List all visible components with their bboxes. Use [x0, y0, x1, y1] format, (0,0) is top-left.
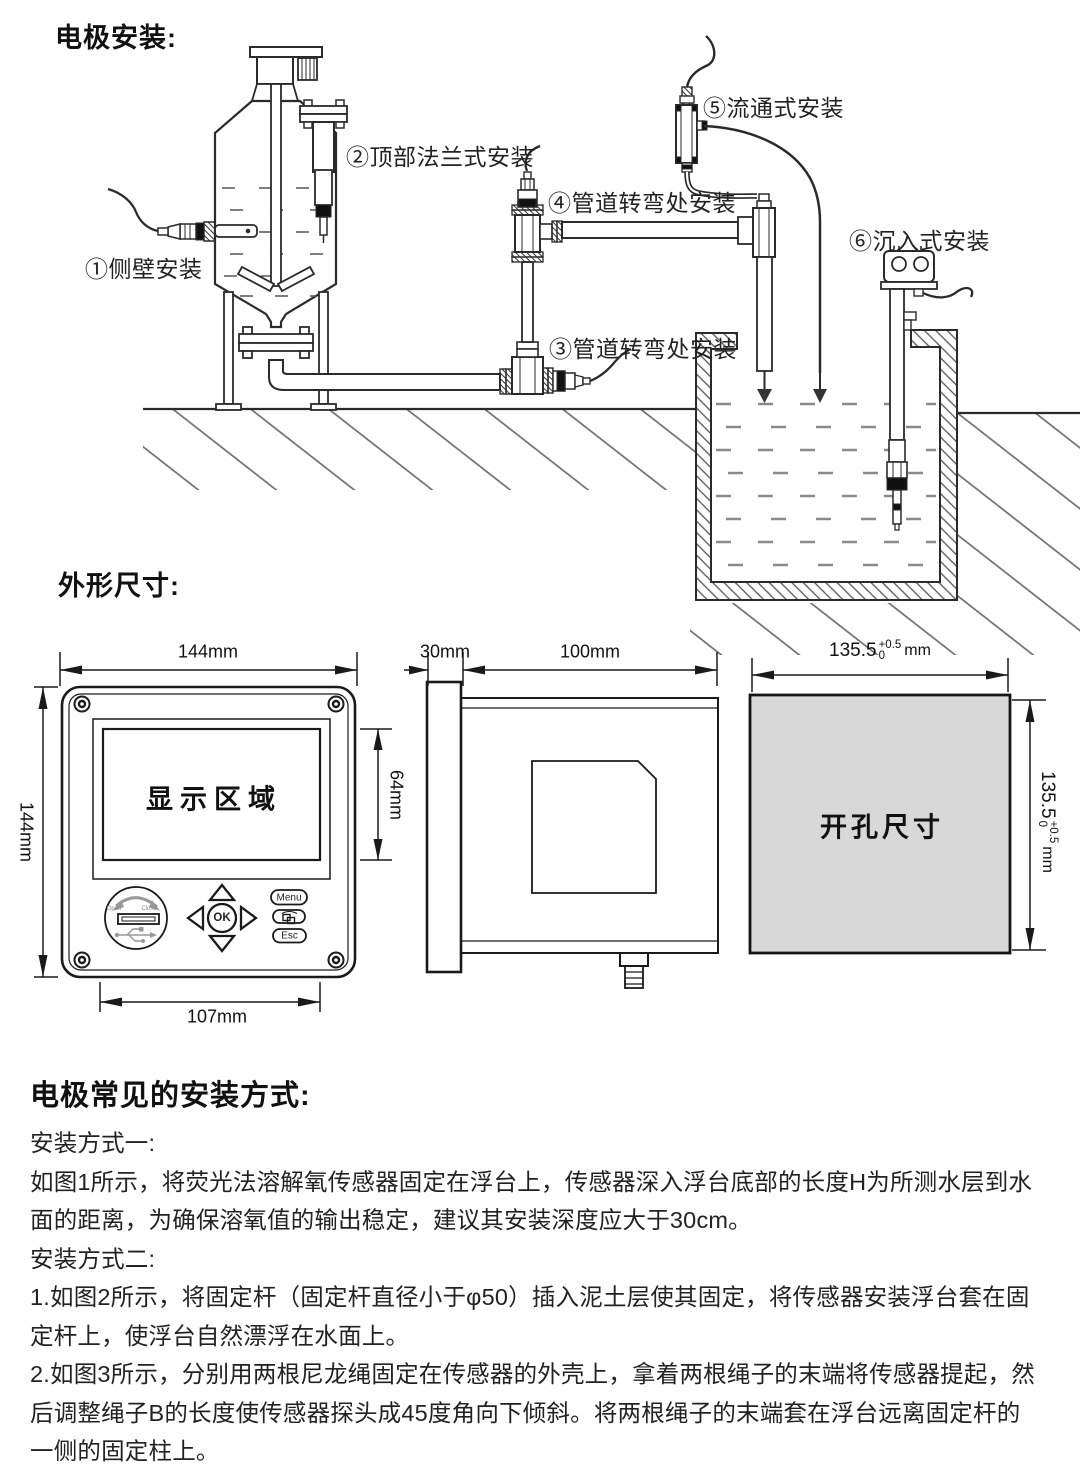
label-sidewall-install: ①侧壁安装	[85, 250, 203, 284]
dim-front-width: 144mm	[178, 642, 238, 663]
close-label: Close	[141, 906, 156, 912]
dim-cutout-height: 135.5 +0.50 mm	[1036, 771, 1058, 873]
label-pipe-elbow-install-4: ④管道转弯处安装	[548, 184, 736, 218]
arrow-up-key	[210, 885, 234, 900]
arrow-left-key	[188, 907, 203, 929]
dim-side-bezel: 30mm	[420, 642, 470, 663]
dim-tol-minus: 0	[879, 651, 902, 662]
side-view-drawing	[404, 652, 718, 988]
instructions-method2-step1: 1.如图2所示，将固定杆（固定杆直径小于φ50）插入泥土层使其固定，将传感器安装…	[30, 1278, 1038, 1355]
label-immersion-install: ⑥沉入式安装	[849, 222, 990, 256]
arrow-right-key	[241, 907, 256, 929]
document-page: 电极安装:	[0, 0, 1080, 1478]
display-area-label: 显示区域	[146, 778, 282, 817]
dim-tol-minus: 0	[1036, 821, 1047, 844]
dim-cutout-width: 135.5 +0.50 mm	[829, 640, 931, 662]
cutout-label: 开孔尺寸	[820, 806, 944, 845]
dim-tol-plus: +0.5	[1047, 821, 1058, 844]
motor-coupling-icon	[298, 58, 317, 80]
dim-value: 135.5	[829, 640, 877, 662]
dim-value: 135.5	[1036, 771, 1058, 819]
instructions-heading: 电极常见的安装方式:	[30, 1072, 1038, 1114]
dim-side-depth: 100mm	[560, 642, 620, 663]
instructions-method1-body: 如图1所示，将荧光法溶解氧传感器固定在浮台上，传感器深入浮台底部的长度H为所测水…	[30, 1163, 1038, 1240]
instructions-method1-title: 安装方式一:	[30, 1124, 1038, 1163]
dim-unit: mm	[904, 642, 931, 660]
instructions-section: 电极常见的安装方式: 安装方式一: 如图1所示，将荧光法溶解氧传感器固定在浮台上…	[30, 1072, 1038, 1471]
section-title-dimensions: 外形尺寸:	[58, 564, 180, 603]
window-switch-icon	[282, 912, 297, 924]
installation-diagram	[0, 0, 1080, 655]
arrow-down-key	[210, 936, 234, 951]
label-pipe-elbow-install-3: ③管道转弯处安装	[549, 330, 737, 364]
dim-display-height: 64mm	[386, 770, 407, 820]
corner-screw-icon	[75, 697, 344, 968]
dim-keypad-width: 107mm	[187, 1007, 247, 1028]
bottom-flange	[239, 327, 313, 358]
front-view-drawing	[34, 652, 392, 1012]
sump-basin	[696, 330, 957, 600]
dim-unit: mm	[1038, 846, 1056, 873]
usb-port-icon	[105, 887, 167, 949]
open-label: Open	[107, 906, 122, 912]
ground-left	[143, 409, 696, 490]
cable-gland-icon	[620, 953, 648, 988]
dim-front-height: 144mm	[16, 802, 37, 862]
menu-label: Menu	[276, 892, 301, 903]
instructions-method2-step2: 2.如图3所示，分别用两根尼龙绳固定在传感器的外壳上，拿着两根绳子的末端将传感器…	[30, 1355, 1038, 1471]
instructions-method2-title: 安装方式二:	[30, 1240, 1038, 1279]
label-flowthrough-install: ⑤流通式安装	[703, 89, 844, 123]
ok-label: OK	[213, 912, 230, 924]
esc-label: Esc	[281, 931, 298, 942]
label-topflange-install: ②顶部法兰式安装	[346, 138, 534, 172]
